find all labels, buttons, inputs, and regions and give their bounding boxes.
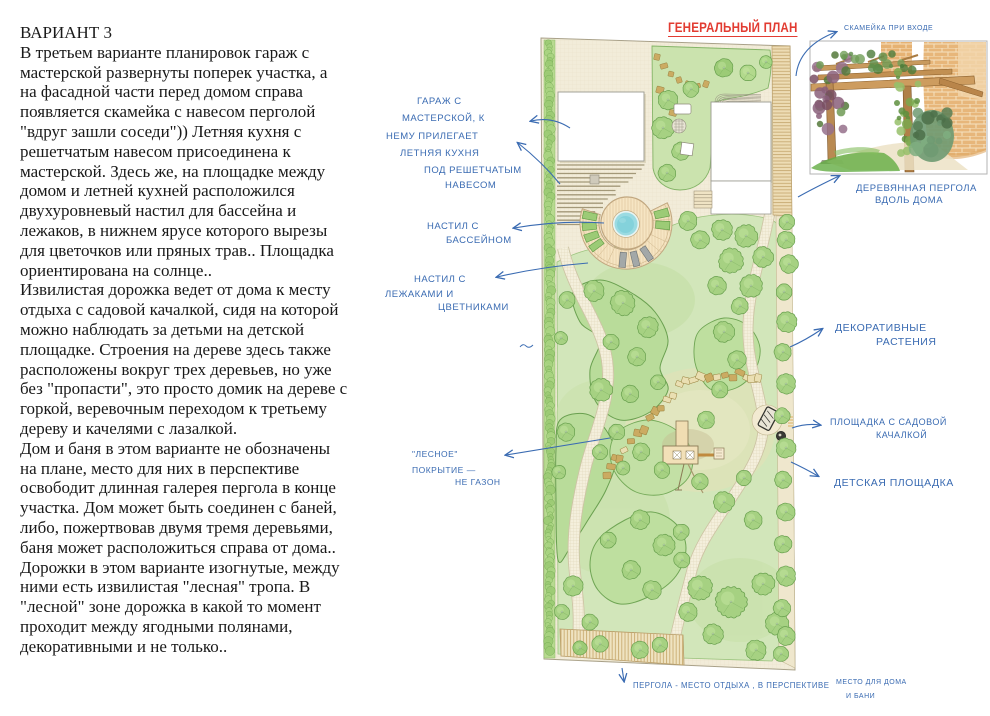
svg-text:ВДОЛЬ ДОМА: ВДОЛЬ ДОМА: [875, 195, 943, 206]
svg-text:РАСТЕНИЯ: РАСТЕНИЯ: [876, 336, 936, 348]
svg-text:"ЛЕСНОЕ": "ЛЕСНОЕ": [412, 449, 458, 459]
svg-text:ПЕРГОЛА - МЕСТО ОТДЫХА , В ПЕР: ПЕРГОЛА - МЕСТО ОТДЫХА , В ПЕРСПЕКТИВЕ: [633, 681, 829, 690]
svg-text:ЛЕЖАКАМИ И: ЛЕЖАКАМИ И: [385, 289, 454, 300]
svg-text:ДЕКОРАТИВНЫЕ: ДЕКОРАТИВНЫЕ: [835, 322, 927, 334]
svg-text:МЕСТО ДЛЯ ДОМА: МЕСТО ДЛЯ ДОМА: [836, 679, 907, 686]
svg-text:НАВЕСОМ: НАВЕСОМ: [445, 180, 496, 191]
svg-text:НАСТИЛ С: НАСТИЛ С: [414, 274, 466, 285]
svg-text:СКАМЕЙКА ПРИ ВХОДЕ: СКАМЕЙКА ПРИ ВХОДЕ: [844, 23, 933, 32]
svg-text:ГАРАЖ С: ГАРАЖ С: [417, 96, 462, 107]
svg-text:НАСТИЛ С: НАСТИЛ С: [427, 221, 479, 232]
svg-text:БАССЕЙНОМ: БАССЕЙНОМ: [446, 234, 512, 246]
svg-text:НЕМУ ПРИЛЕГАЕТ: НЕМУ ПРИЛЕГАЕТ: [386, 131, 478, 142]
svg-text:И БАНИ: И БАНИ: [846, 693, 875, 700]
svg-text:ДЕРЕВЯННАЯ ПЕРГОЛА: ДЕРЕВЯННАЯ ПЕРГОЛА: [856, 183, 977, 194]
svg-text:ПОКРЫТИЕ —: ПОКРЫТИЕ —: [412, 465, 476, 475]
svg-text:ЦВЕТНИКАМИ: ЦВЕТНИКАМИ: [438, 302, 509, 313]
svg-text:ДЕТСКАЯ ПЛОЩАДКА: ДЕТСКАЯ ПЛОЩАДКА: [834, 477, 954, 489]
svg-text:ПЛОЩАДКА С САДОВОЙ: ПЛОЩАДКА С САДОВОЙ: [830, 416, 947, 427]
svg-text:МАСТЕРСКОЙ, К: МАСТЕРСКОЙ, К: [402, 112, 485, 124]
svg-text:ПОД РЕШЕТЧАТЫМ: ПОД РЕШЕТЧАТЫМ: [424, 165, 522, 176]
svg-text:НЕ ГАЗОН: НЕ ГАЗОН: [455, 477, 501, 487]
svg-text:ЛЕТНЯЯ КУХНЯ: ЛЕТНЯЯ КУХНЯ: [400, 148, 479, 159]
svg-text:КАЧАЛКОЙ: КАЧАЛКОЙ: [876, 429, 927, 440]
